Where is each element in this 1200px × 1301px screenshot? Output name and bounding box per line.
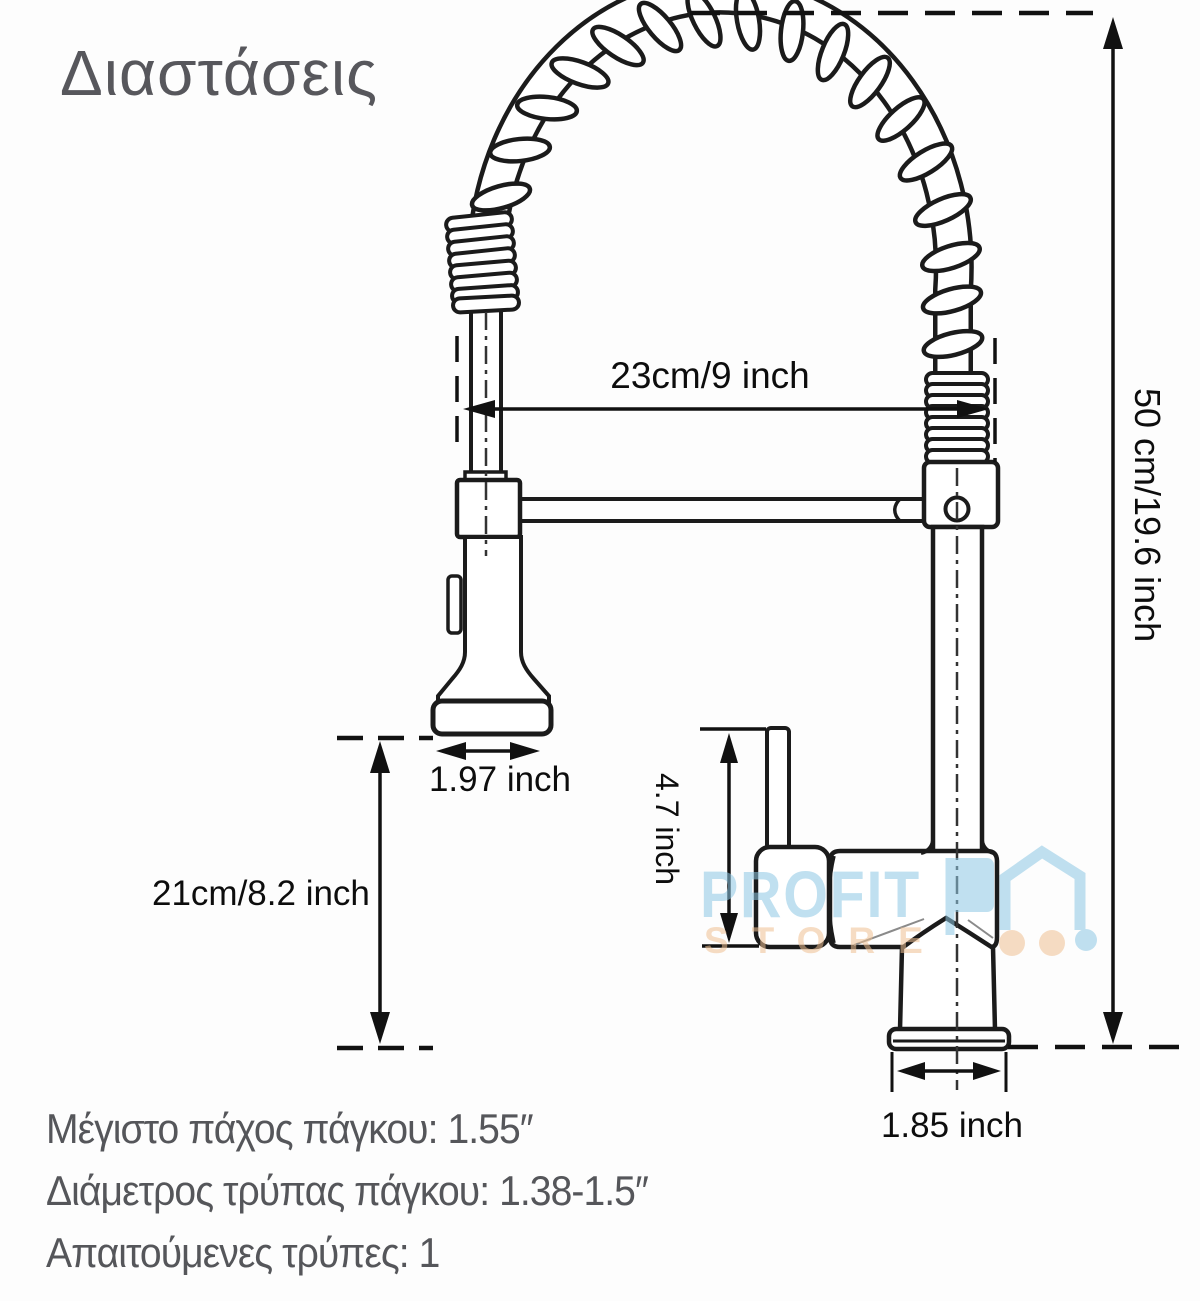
note-hole-diameter: Διάμετρος τρύπας πάγκου: 1.38-1.5″ xyxy=(46,1170,648,1212)
note-counter-thickness: Μέγιστο πάχος πάγκου: 1.55″ xyxy=(46,1108,648,1150)
base-flange xyxy=(889,1029,1009,1049)
watermark-text-store: STORE xyxy=(704,920,946,962)
spring-end-coil-left xyxy=(445,212,519,313)
dim-label-handle-height: 4.7 inch xyxy=(648,773,685,885)
support-bar xyxy=(521,499,927,521)
page-title: Διαστάσεις xyxy=(60,36,378,110)
spray-button xyxy=(448,576,461,633)
spec-notes: Μέγιστο πάχος πάγκου: 1.55″ Διάμετρος τρ… xyxy=(46,1108,693,1294)
watermark-store-logo-icon xyxy=(938,838,1108,963)
dim-label-clearance-height: 21cm/8.2 inch xyxy=(152,874,370,914)
faucet-dimensions-diagram: Διαστάσεις 23cm/9 inch 50 cm/19.6 inch 1… xyxy=(0,0,1200,1301)
handle-lever xyxy=(767,728,789,853)
wand-holder-block xyxy=(457,480,520,537)
spray-head-cap xyxy=(433,701,551,734)
centerlines xyxy=(486,312,957,1090)
dim-label-spout-reach: 23cm/9 inch xyxy=(595,355,825,397)
dim-label-total-height: 50 cm/19.6 inch xyxy=(1126,388,1168,642)
dim-label-base-width: 1.85 inch xyxy=(862,1106,1042,1146)
note-holes-required: Απαιτούμενες τρύπες: 1 xyxy=(46,1232,648,1274)
dim-label-spray-width: 1.97 inch xyxy=(415,760,585,800)
